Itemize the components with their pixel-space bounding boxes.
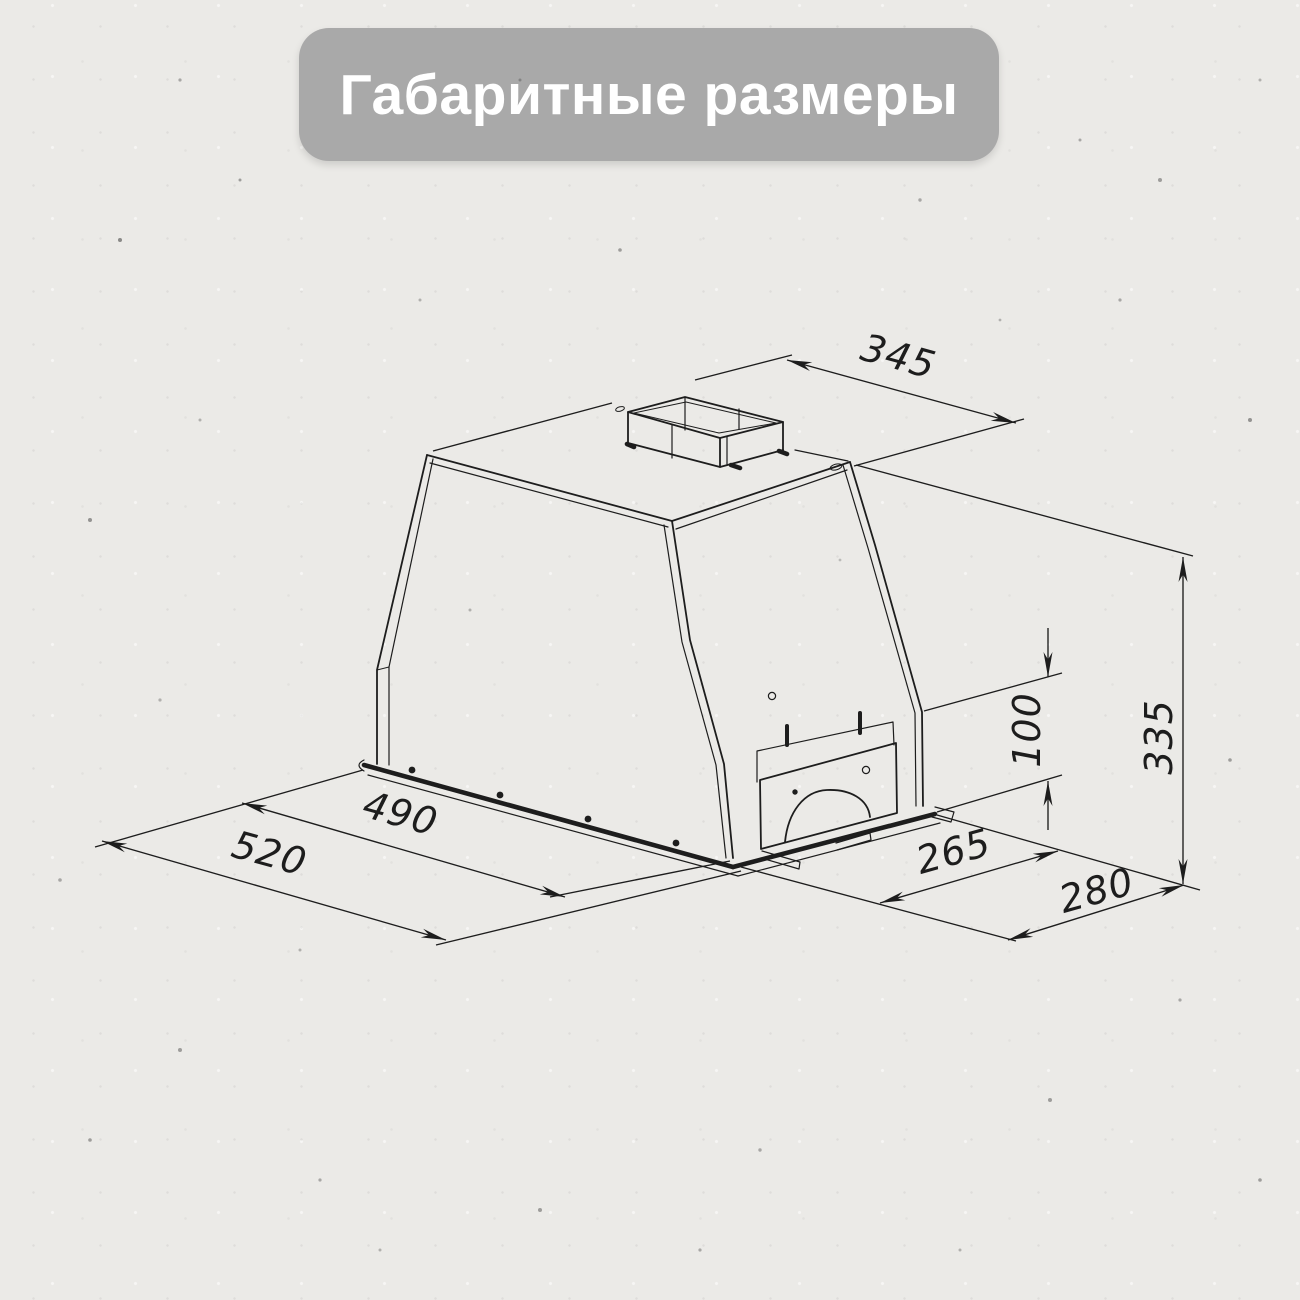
ext-line-345-right <box>854 419 1024 466</box>
body-front-corner-edge <box>672 521 733 858</box>
ext-line-345-left-a <box>433 403 612 451</box>
body-left-bend-tie <box>377 667 389 670</box>
bracket-screw <box>792 789 797 794</box>
ext-line-335-top <box>856 465 1193 556</box>
body-front-ridge <box>427 455 672 521</box>
body-right-ridge <box>672 462 850 521</box>
body-left-edge-chamfer <box>389 459 433 765</box>
dim-label-280: 280 <box>1054 859 1139 922</box>
ext-line-490-right <box>550 861 730 897</box>
body-left-edge <box>377 455 427 764</box>
ext-line-520-right <box>436 871 741 945</box>
body-right-edge <box>850 462 923 806</box>
top-face-hole-left <box>615 406 625 413</box>
dim-label-345: 345 <box>856 325 940 387</box>
body-front-corner-chamfer <box>664 525 726 858</box>
duct-foot-left <box>627 444 634 447</box>
dim-label-100: 100 <box>1005 692 1049 768</box>
dimension-lower-section-height: 100 <box>924 628 1062 830</box>
bracket-front-plate <box>760 743 897 849</box>
air-duct-collar <box>627 397 787 468</box>
bracket-back-plate <box>757 722 894 782</box>
base-flange <box>359 760 954 876</box>
dimension-depths: 265 280 <box>741 820 1184 941</box>
duct-foot-right <box>779 451 787 454</box>
front-hole-1 <box>409 767 416 774</box>
ext-line-345-left-b <box>695 355 792 380</box>
dimension-widths: 490 520 <box>95 770 741 945</box>
dim-label-520: 520 <box>227 822 311 884</box>
paper-speckles <box>58 78 1262 1251</box>
body-right-ridge-chamfer <box>676 470 847 529</box>
front-hole-2 <box>497 792 504 799</box>
bracket-hole <box>862 766 869 773</box>
ext-line-width-left <box>95 770 363 847</box>
duct-foot-front <box>731 465 740 468</box>
ext-line-depth-left <box>741 867 1016 941</box>
side-face-hole <box>768 692 775 699</box>
dimension-overall-height: 335 <box>856 465 1200 890</box>
duct-bottom-edges <box>628 443 783 467</box>
page-background: Габаритные размеры <box>0 0 1300 1300</box>
front-hole-4 <box>673 840 680 847</box>
dim-label-335: 335 <box>1137 699 1181 775</box>
body-front-ridge-chamfer <box>430 463 668 527</box>
dimensional-drawing: 345 335 100 490 520 <box>0 0 1300 1300</box>
dimension-top-width: 345 <box>433 325 1024 466</box>
front-face-holes <box>409 767 680 847</box>
body-back-top-edge <box>795 450 848 461</box>
ext-line-100-bottom <box>937 775 1062 812</box>
front-hole-3 <box>585 816 592 823</box>
